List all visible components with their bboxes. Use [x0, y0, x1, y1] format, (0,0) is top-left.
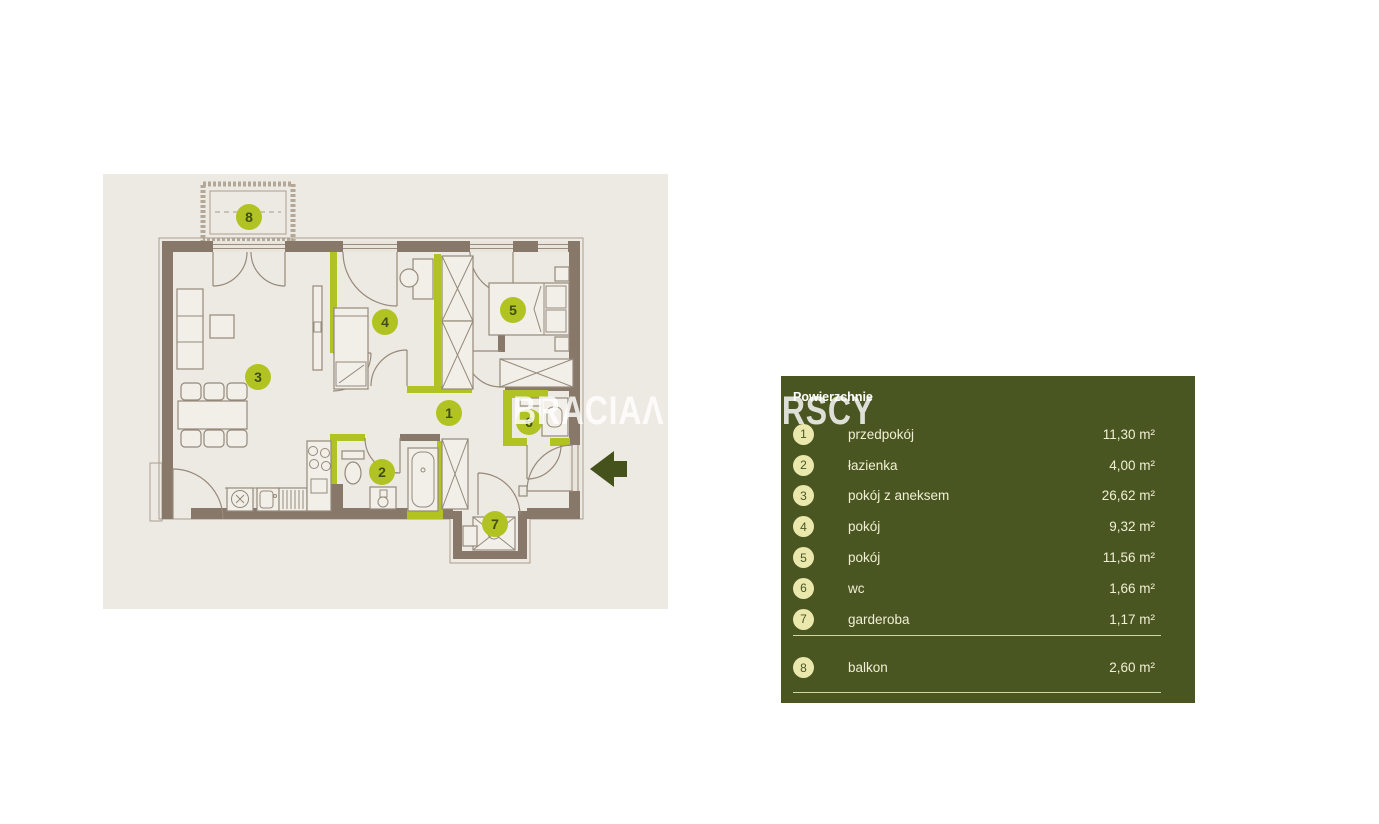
- nightstand: [555, 337, 569, 351]
- legend-row-number-badge: 7: [793, 609, 814, 630]
- legend-row-number-badge: 8: [793, 657, 814, 678]
- legend-divider: [793, 692, 1161, 693]
- legend-row-label: garderoba: [848, 612, 910, 627]
- legend-row-label: wc: [848, 581, 865, 596]
- legend-row: 2 łazienka 4,00 m²: [781, 450, 1195, 481]
- entrance-arrow-icon: [590, 451, 627, 487]
- legend-row-label: pokój: [848, 550, 880, 565]
- nightstand: [555, 267, 569, 281]
- chair: [400, 269, 418, 287]
- legend-row: 4 pokój 9,32 m²: [781, 511, 1195, 542]
- legend-row-number-badge: 6: [793, 578, 814, 599]
- room-badge-number: 1: [445, 405, 453, 421]
- legend-rows-extra: 8 balkon 2,60 m²: [781, 653, 1195, 684]
- legend-row: 6 wc 1,66 m²: [781, 573, 1195, 604]
- legend-row: 3 pokój z aneksem 26,62 m²: [781, 481, 1195, 512]
- legend-row-area: 9,32 m²: [1109, 519, 1155, 534]
- legend-row-area: 11,56 m²: [1103, 550, 1155, 565]
- room-badge-number: 4: [381, 314, 389, 330]
- legend-row-number-badge: 5: [793, 547, 814, 568]
- legend-row-number-badge: 3: [793, 485, 814, 506]
- room-badge-number: 2: [378, 464, 386, 480]
- legend-row-label: pokój z aneksem: [848, 488, 949, 503]
- sofa: [177, 289, 203, 369]
- legend-row-area: 1,17 m²: [1109, 612, 1155, 627]
- legend-rows-main: 1 przedpokój 11,30 m² 2 łazienka 4,00 m²…: [781, 419, 1195, 635]
- watermark-brand-right: SADURSCY: [688, 391, 874, 433]
- legend-row-label: balkon: [848, 660, 888, 675]
- room-badge-number: 3: [254, 369, 262, 385]
- dining-table: [178, 401, 247, 429]
- toilet: [342, 451, 364, 459]
- wall-recess-outline: [150, 463, 162, 521]
- side-table: [210, 315, 234, 338]
- legend-row: 7 garderoba 1,17 m²: [781, 604, 1195, 635]
- legend-rows: 1 przedpokój 11,30 m² 2 łazienka 4,00 m²…: [781, 419, 1195, 693]
- legend-row-area: 4,00 m²: [1109, 458, 1155, 473]
- legend-row-area: 11,30 m²: [1103, 427, 1155, 442]
- legend-row: 5 pokój 11,56 m²: [781, 542, 1195, 573]
- room-badge-number: 7: [491, 516, 499, 532]
- single-bed: [334, 308, 368, 389]
- legend-row-label: łazienka: [848, 458, 898, 473]
- legend-row-area: 1,66 m²: [1109, 581, 1155, 596]
- legend-row: 8 balkon 2,60 m²: [781, 653, 1195, 684]
- floorplan-listing-image: 12345678 BRACIAΛ SADURSCY Powierzchnie 1…: [0, 0, 1379, 824]
- room-badge-number: 5: [509, 302, 517, 318]
- legend-row-label: pokój: [848, 519, 880, 534]
- kitchen: [225, 441, 331, 511]
- legend-row-number-badge: 4: [793, 516, 814, 537]
- watermark-brand-left: BRACIAΛ: [513, 391, 664, 433]
- legend-row-number-badge: 2: [793, 455, 814, 476]
- room-badge-number: 8: [245, 209, 253, 225]
- legend-row-area: 2,60 m²: [1109, 660, 1155, 675]
- legend-row-area: 26,62 m²: [1102, 488, 1155, 503]
